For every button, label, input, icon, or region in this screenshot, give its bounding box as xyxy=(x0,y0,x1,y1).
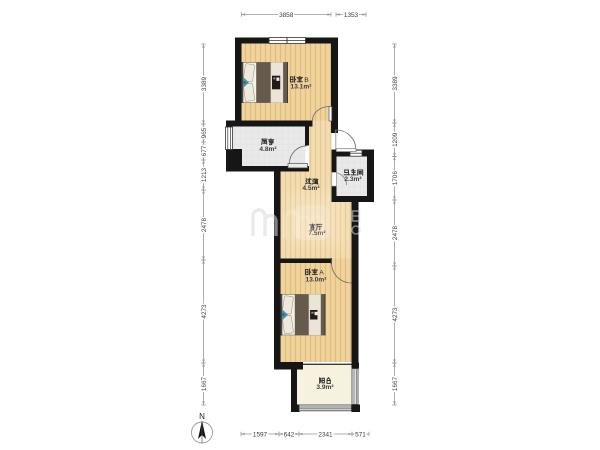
svg-text:571: 571 xyxy=(355,431,366,438)
svg-text:1213: 1213 xyxy=(201,167,208,182)
svg-text:2341: 2341 xyxy=(318,431,333,438)
svg-text:1597: 1597 xyxy=(253,431,268,438)
svg-text:13.0m²: 13.0m² xyxy=(306,277,328,284)
svg-text:1353: 1353 xyxy=(344,12,359,19)
svg-text:N: N xyxy=(199,412,205,421)
svg-text:3858: 3858 xyxy=(279,12,294,19)
svg-text:4273: 4273 xyxy=(201,304,208,319)
svg-text:1706: 1706 xyxy=(392,171,399,186)
svg-text:3389: 3389 xyxy=(201,76,208,91)
svg-text:1667: 1667 xyxy=(392,376,399,391)
svg-text:2478: 2478 xyxy=(392,225,399,240)
svg-text:677: 677 xyxy=(201,145,208,156)
svg-text:2478: 2478 xyxy=(201,217,208,232)
svg-text:1209: 1209 xyxy=(392,132,399,147)
svg-text:3389: 3389 xyxy=(392,76,399,91)
svg-text:A: A xyxy=(319,269,324,276)
svg-text:1667: 1667 xyxy=(201,376,208,391)
svg-text:4.8m²: 4.8m² xyxy=(259,146,277,153)
svg-text:642: 642 xyxy=(284,431,295,438)
svg-text:965: 965 xyxy=(201,127,208,138)
svg-text:2.3m²: 2.3m² xyxy=(344,176,362,183)
svg-text:13.1m²: 13.1m² xyxy=(291,84,313,91)
svg-text:4273: 4273 xyxy=(392,307,399,322)
svg-text:3.9m²: 3.9m² xyxy=(316,384,334,391)
svg-text:4.5m²: 4.5m² xyxy=(302,185,320,192)
